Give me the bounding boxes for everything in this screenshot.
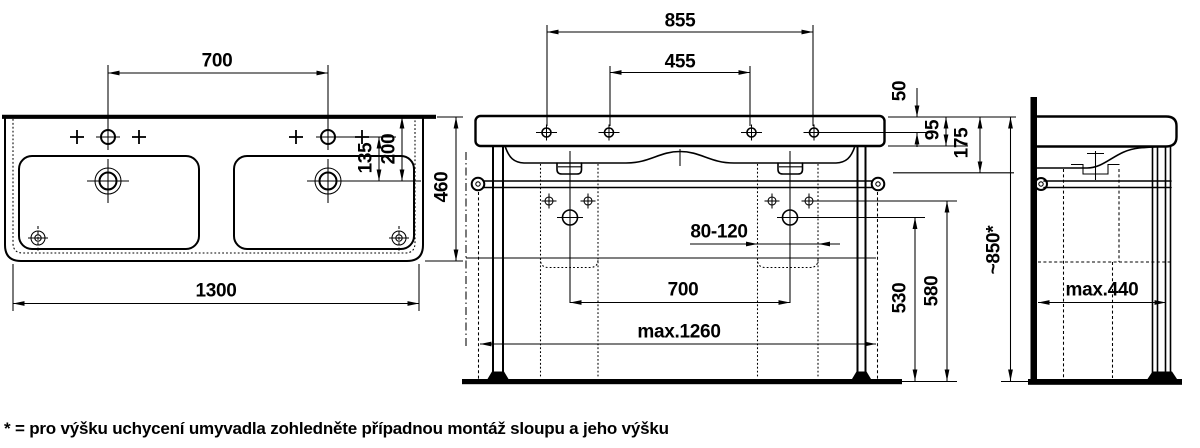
dim-front-apron-height: 95 bbox=[923, 117, 947, 146]
front-hidden-drains bbox=[541, 164, 819, 378]
towel-rail bbox=[472, 178, 885, 191]
top-view-left-bowl bbox=[19, 156, 199, 249]
dim-label: 455 bbox=[665, 52, 697, 73]
side-towel-rail bbox=[1035, 178, 1171, 190]
front-view: 855 455 50 95 175 bbox=[462, 11, 1016, 385]
dim-label: max.1260 bbox=[637, 322, 720, 343]
side-wall bbox=[1031, 97, 1038, 382]
dim-side-depth: max.440 bbox=[1038, 280, 1166, 303]
dim-trap-height: 530 bbox=[890, 218, 916, 382]
dim-label: ~850* bbox=[984, 225, 1005, 275]
dim-drain-offset-range: 80-120 bbox=[690, 222, 840, 245]
dim-label: 460 bbox=[432, 172, 453, 203]
dim-label: 200 bbox=[379, 134, 400, 165]
dim-label: 530 bbox=[890, 283, 911, 314]
connection-point-symbols bbox=[542, 194, 817, 226]
footnote: * = pro výšku uchycení umyvadla zohledně… bbox=[4, 419, 904, 439]
dim-label: 80-120 bbox=[690, 222, 747, 243]
dim-front-drain-spacing: 700 bbox=[570, 280, 790, 303]
side-basin-outline bbox=[1038, 117, 1177, 147]
top-view: 700 1300 135 200 460 bbox=[2, 51, 463, 312]
front-floor bbox=[462, 379, 902, 384]
dim-label: 95 bbox=[923, 119, 944, 140]
dim-front-top-to-rail: 175 bbox=[952, 117, 981, 173]
dim-label: 135 bbox=[356, 142, 377, 174]
drain-holes bbox=[87, 159, 349, 203]
side-view: max.440 bbox=[1001, 97, 1182, 385]
dim-rail-width: max.1260 bbox=[480, 322, 876, 345]
dim-label: max.440 bbox=[1066, 280, 1139, 301]
front-fixing-holes bbox=[536, 125, 825, 141]
dim-label: 175 bbox=[952, 127, 973, 159]
dim-valve-height: 580 bbox=[922, 201, 948, 381]
dim-label: 700 bbox=[668, 280, 699, 301]
top-view-hidden-edge bbox=[13, 119, 415, 253]
dim-label: 580 bbox=[922, 276, 943, 307]
side-bowl-underside bbox=[1038, 147, 1167, 169]
top-view-right-bowl bbox=[234, 156, 414, 249]
side-floor bbox=[1028, 379, 1182, 385]
dim-label: 855 bbox=[665, 11, 697, 32]
dim-label: 1300 bbox=[195, 281, 236, 302]
dim-label: 50 bbox=[890, 81, 911, 102]
side-hidden-drain bbox=[1038, 169, 1171, 378]
side-drain-detail bbox=[1071, 151, 1120, 180]
dim-label: 700 bbox=[202, 51, 233, 72]
dim-top-faucet-spacing: 700 bbox=[108, 51, 328, 125]
dim-top-basin-width: 1300 bbox=[13, 264, 419, 311]
dim-top-basin-depth: 460 bbox=[425, 117, 463, 261]
front-basin-outline bbox=[476, 116, 885, 146]
dim-front-top-to-holes: 50 bbox=[890, 81, 918, 147]
dim-install-height: ~850* bbox=[984, 117, 1011, 381]
faucet-holes bbox=[70, 124, 369, 150]
drawing-canvas: 700 1300 135 200 460 bbox=[0, 0, 1200, 448]
top-view-outline bbox=[5, 118, 423, 261]
dim-top-135-200: 135 200 bbox=[338, 117, 421, 181]
technical-drawing-washbasin: 700 1300 135 200 460 bbox=[0, 0, 1200, 448]
